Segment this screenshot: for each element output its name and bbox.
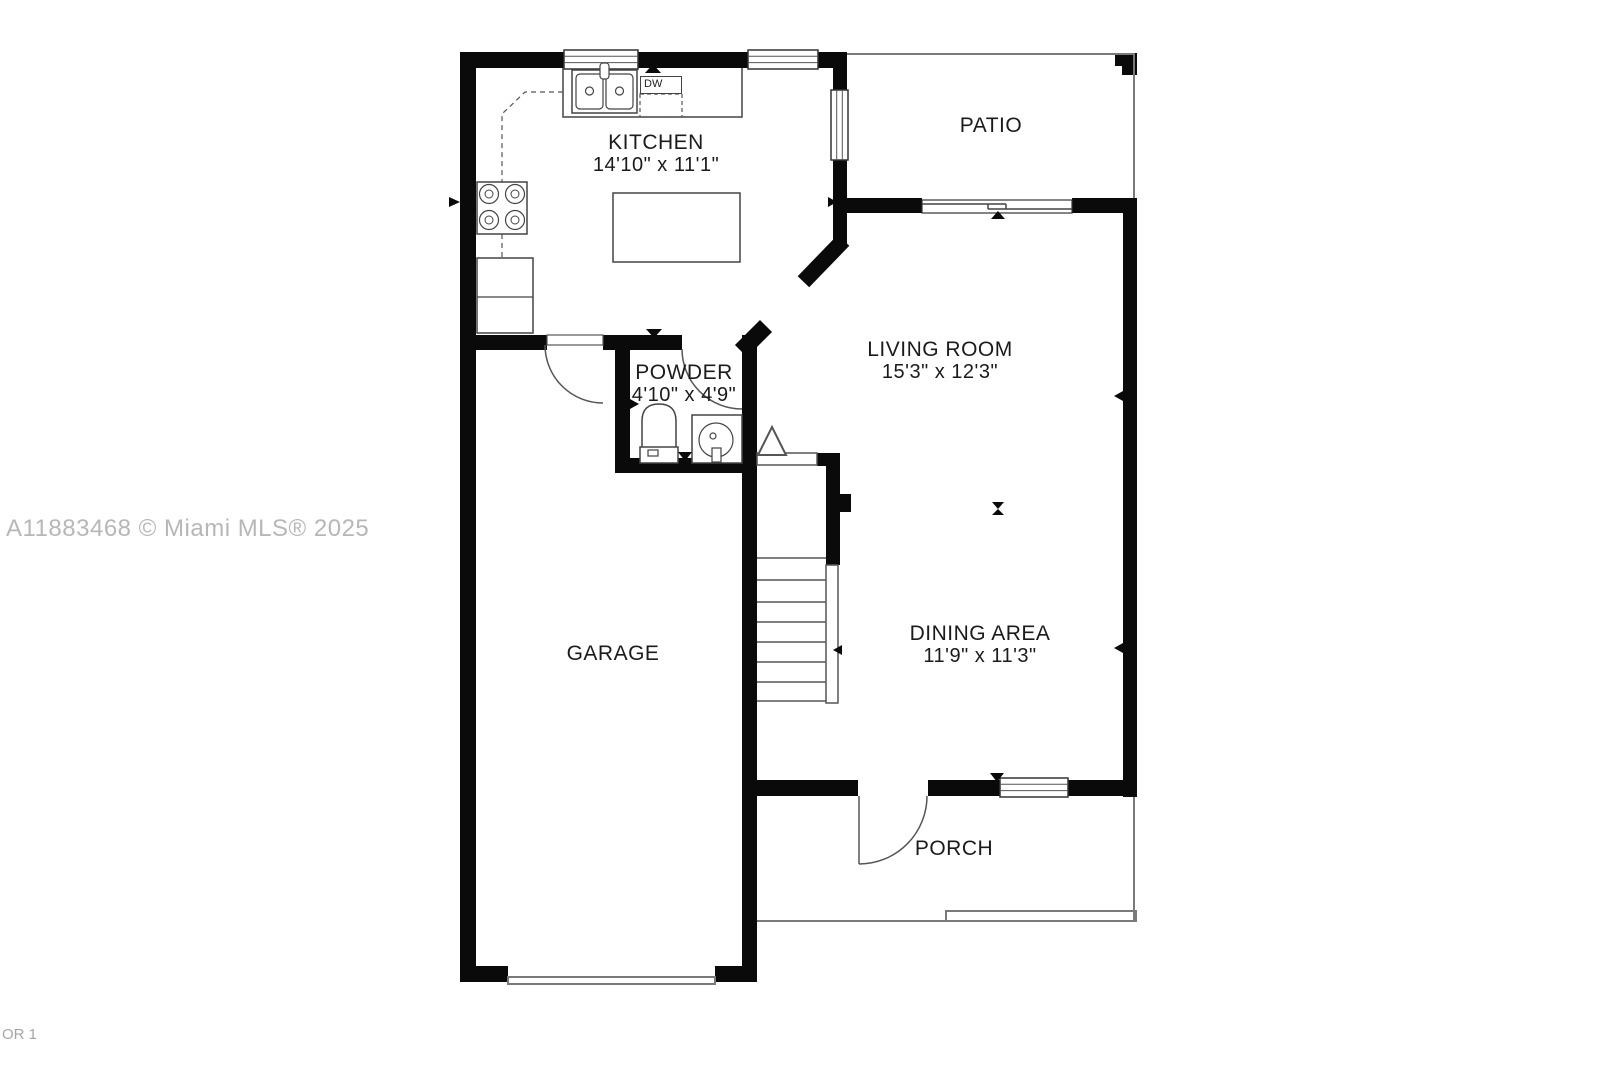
window-kitchen-b xyxy=(748,50,818,69)
base-cabinet xyxy=(477,258,533,333)
room-label-porch: PORCH xyxy=(915,837,993,860)
room-label-garage: GARAGE xyxy=(567,642,660,665)
stove xyxy=(477,182,527,234)
garage-door xyxy=(508,977,715,984)
floor-number-label: OR 1 xyxy=(2,1026,37,1043)
door-kitchen-to-garage xyxy=(545,335,603,403)
room-label-kitchen: KITCHEN 14'10" x 11'1" xyxy=(593,131,719,177)
dishwasher-outline xyxy=(640,94,682,117)
marker-ext-wall xyxy=(449,197,460,207)
sliding-door-patio xyxy=(922,200,1072,213)
marker-patio-start xyxy=(828,197,837,207)
kitchen-island xyxy=(613,193,740,262)
porch-step xyxy=(946,911,1136,921)
dishwasher-label: DW xyxy=(644,78,662,90)
room-name: PORCH xyxy=(915,837,993,860)
room-name: POWDER xyxy=(632,361,737,384)
staircase xyxy=(757,427,838,703)
marker-top-wall xyxy=(645,64,661,73)
marker-right-wall-2 xyxy=(1114,643,1123,653)
marker-powder-bottom xyxy=(678,452,692,461)
stair-triangle-marker xyxy=(758,427,786,455)
room-dims: 15'3" x 12'3" xyxy=(867,361,1013,384)
toilet xyxy=(640,404,678,463)
mls-watermark: A11883468 © Miami MLS® 2025 xyxy=(6,515,369,543)
marker-divider-wall xyxy=(646,329,662,338)
wall-diagonal-kitchen xyxy=(809,246,838,276)
vanity-sink xyxy=(692,415,742,463)
marker-right-wall-1 xyxy=(1114,391,1123,401)
room-label-powder: POWDER 4'10" x 4'9" xyxy=(632,361,737,407)
room-name: PATIO xyxy=(960,114,1022,137)
room-label-patio: PATIO xyxy=(960,114,1022,137)
room-dims: 4'10" x 4'9" xyxy=(632,384,737,407)
upper-cabinet-dashed xyxy=(502,92,563,182)
room-name: DINING AREA xyxy=(910,622,1051,645)
kitchen-sink xyxy=(572,63,637,113)
stair-stringer xyxy=(826,565,838,703)
window-dining xyxy=(1000,778,1068,797)
wall-diagonal-powder xyxy=(747,332,760,345)
room-label-dining-area: DINING AREA 11'9" x 11'3" xyxy=(910,622,1051,668)
room-name: KITCHEN xyxy=(593,131,719,154)
floor-plan: DW KITCHEN 14'10" x 11'1" PATIO LIVING R… xyxy=(0,0,1600,1066)
faucet xyxy=(600,63,609,79)
marker-living-center xyxy=(992,502,1004,515)
room-name: LIVING ROOM xyxy=(867,338,1013,361)
room-label-living-room: LIVING ROOM 15'3" x 12'3" xyxy=(867,338,1013,384)
room-dims: 11'9" x 11'3" xyxy=(910,645,1051,668)
room-dims: 14'10" x 11'1" xyxy=(593,154,719,177)
window-patio-side xyxy=(831,90,848,160)
room-name: GARAGE xyxy=(567,642,660,665)
dishwasher-label-box: DW xyxy=(640,76,682,94)
